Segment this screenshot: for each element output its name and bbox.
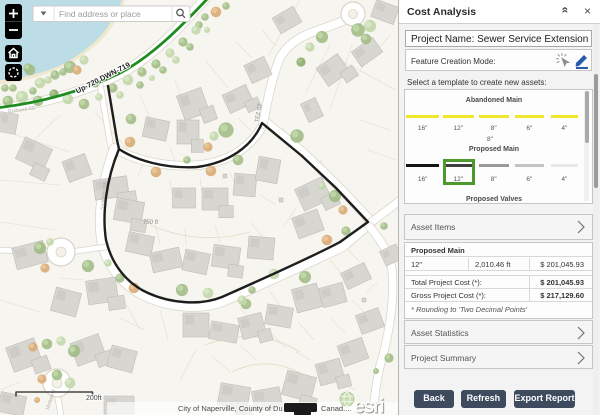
svg-text:750 ft: 750 ft [143, 220, 158, 226]
svg-text:esri: esri [354, 396, 385, 415]
svg-text:Find address or place: Find address or place [59, 9, 141, 19]
svg-text:City of Naperville, County of: City of Naperville, County of Du [178, 404, 283, 413]
svg-text:200ft: 200ft [86, 395, 102, 402]
